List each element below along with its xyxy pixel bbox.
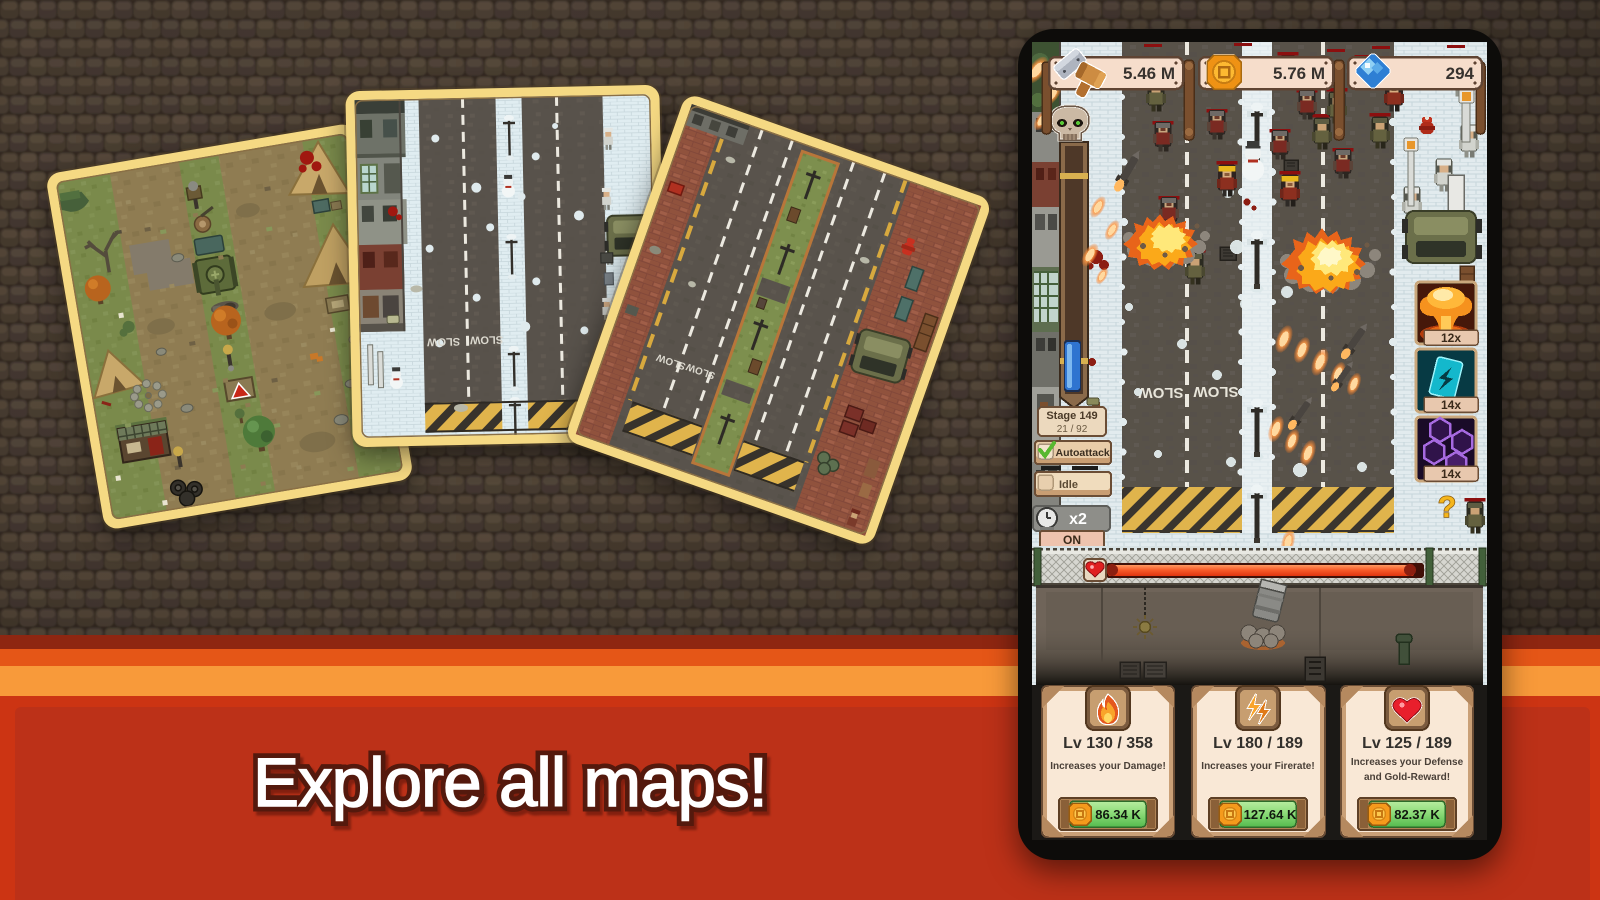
svg-text:and Gold-Reward!: and Gold-Reward! xyxy=(1364,772,1450,783)
svg-text:x2: x2 xyxy=(1069,511,1087,528)
svg-text:SLOW: SLOW xyxy=(1138,384,1184,401)
svg-text:Autoattack: Autoattack xyxy=(1056,447,1110,459)
svg-text:Increases your Defense: Increases your Defense xyxy=(1351,757,1464,768)
svg-text:Lv 130 / 358: Lv 130 / 358 xyxy=(1063,735,1153,752)
svg-text:86.34 K: 86.34 K xyxy=(1095,807,1141,822)
svg-text:SLOW: SLOW xyxy=(426,335,460,348)
svg-text:?: ? xyxy=(1438,491,1456,524)
svg-text:SLOW: SLOW xyxy=(1193,383,1239,400)
svg-text:SLOW: SLOW xyxy=(469,333,503,346)
svg-text:82.37 K: 82.37 K xyxy=(1394,807,1440,822)
svg-text:14x: 14x xyxy=(1441,467,1461,481)
svg-text:21 / 92: 21 / 92 xyxy=(1057,424,1088,435)
svg-text:127.64 K: 127.64 K xyxy=(1244,807,1297,822)
svg-text:14x: 14x xyxy=(1441,398,1461,412)
svg-text:Stage 149: Stage 149 xyxy=(1046,410,1097,422)
svg-text:ON: ON xyxy=(1063,533,1081,547)
svg-text:Lv 180 / 189: Lv 180 / 189 xyxy=(1213,735,1303,752)
svg-text:Lv 125 / 189: Lv 125 / 189 xyxy=(1362,735,1452,752)
svg-text:5.76 M: 5.76 M xyxy=(1273,64,1325,83)
svg-text:Increases your Firerate!: Increases your Firerate! xyxy=(1201,761,1314,772)
svg-text:Explore all maps!: Explore all maps! xyxy=(253,744,767,821)
svg-text:Idle: Idle xyxy=(1059,479,1078,491)
svg-text:5.46 M: 5.46 M xyxy=(1123,64,1175,83)
svg-text:294: 294 xyxy=(1446,64,1475,83)
svg-text:12x: 12x xyxy=(1441,331,1461,345)
svg-text:Increases your Damage!: Increases your Damage! xyxy=(1050,761,1166,772)
